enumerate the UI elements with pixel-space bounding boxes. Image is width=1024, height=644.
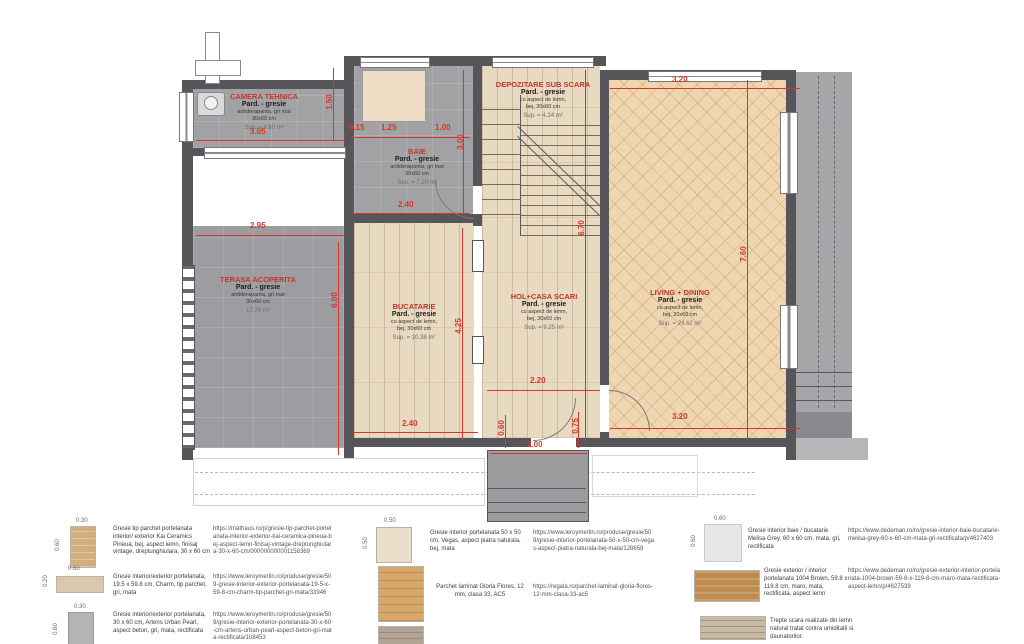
- room-spec: bej, 30x60 cm: [391, 326, 437, 333]
- terasa-floor: [193, 226, 344, 448]
- dimension-line: [352, 432, 478, 433]
- right-terrace: [796, 72, 852, 412]
- room-floor: Pard. - gresie: [390, 156, 444, 164]
- swatch-width-label: 0.60: [714, 516, 726, 522]
- room-spec: antiderapanta, gri mat: [220, 292, 296, 299]
- material-swatch-kai: [70, 526, 96, 568]
- material-swatch-trepte: [700, 616, 766, 640]
- room-spec: bej, 20x60 cm: [650, 312, 710, 319]
- room-spec: antiderapanta, gri mat: [390, 164, 444, 171]
- window: [648, 71, 762, 82]
- room-label-depozitare: DEPOZITARE SUB SCARA Pard. - gresie cu a…: [496, 80, 590, 120]
- material-swatch-charm: [56, 576, 104, 593]
- dimension-line: [350, 137, 470, 138]
- dimension-line: [462, 228, 463, 440]
- legend-description: Gresie tip parchet portelanata interior/…: [113, 526, 211, 557]
- chimney: [205, 32, 220, 84]
- swatch-height-label: 0.20: [43, 575, 49, 587]
- room-spec: bej, 30x60 cm: [511, 316, 578, 323]
- room-title: BUCATARIE: [391, 302, 437, 311]
- material-swatch-melisa: [704, 524, 742, 562]
- dimension-line: [585, 70, 586, 445]
- room-label-terasa: TERASA ACOPERITA Pard. - gresie antidera…: [220, 275, 296, 315]
- room-label-living: LIVING + DINING Pard. - gresie cu aspect…: [650, 288, 710, 328]
- dimension-label: 1.50: [326, 94, 334, 110]
- room-floor: Pard. - gresie: [650, 297, 710, 305]
- window: [179, 92, 194, 142]
- toilet-bowl: [204, 96, 218, 110]
- dimension-label: 2.40: [402, 420, 418, 428]
- material-swatch-gloria: [378, 566, 424, 622]
- dimension-label: 3.00: [457, 134, 465, 150]
- legend-url: https://www.leroymerlin.ro/produse/gresi…: [213, 574, 333, 597]
- wall: [344, 218, 354, 458]
- legend-description: Gresie interior portelanata 50 x 50 cm, …: [430, 530, 530, 553]
- room-label-bucatarie: BUCATARIE Pard. - gresie cu aspect de le…: [391, 302, 437, 342]
- dimension-line: [490, 453, 587, 454]
- legend-url: https://www.dedeman.ro/ro/gresie-exterio…: [848, 568, 1003, 591]
- room-spec: cu aspect de lemn,: [391, 319, 437, 326]
- room-title: CAMERA TEHNICA: [230, 92, 298, 101]
- legend-description: Gresie interior/exterior portelanata, 19…: [113, 574, 211, 597]
- swatch-width-label: 0.30: [74, 604, 86, 610]
- room-area: Sup. = 7.20 m²: [390, 180, 444, 187]
- dimension-line: [352, 213, 470, 214]
- wall: [600, 70, 609, 385]
- legend-description: Gresie interior baie / bucatarie Melisa …: [748, 528, 845, 551]
- wall: [182, 448, 193, 460]
- wall: [476, 438, 531, 447]
- material-swatch-1004-brown: [694, 570, 760, 602]
- room-spec: bej, 30x60 cm: [496, 104, 590, 111]
- room-area: Sup. = 9.25 m²: [511, 325, 578, 332]
- room-area: Sup. = 10.38 m²: [391, 335, 437, 342]
- entrance-step-line: [488, 502, 586, 503]
- sliding-glass-door: [204, 147, 346, 159]
- window: [492, 57, 594, 68]
- dimension-label: 2.95: [250, 222, 266, 230]
- dimension-line: [338, 242, 339, 455]
- room-area: Sup. = 24.62 m²: [650, 321, 710, 328]
- room-label-baie: BAIE Pard. - gresie antiderapanta, gri m…: [390, 147, 444, 187]
- dimension-label: 1.00: [435, 124, 451, 132]
- legend-description: Parchet laminat Gloria Flores, 12 mm, cl…: [430, 584, 530, 600]
- material-swatch-artens: [68, 612, 94, 644]
- room-label-hol: HOL+CASA SCARI Pard. - gresie cu aspect …: [511, 292, 578, 332]
- dimension-line: [196, 140, 345, 141]
- dimension-label: 4.25: [455, 318, 463, 334]
- dimension-label: 0.75: [572, 418, 580, 434]
- right-terrace-extension: [796, 438, 868, 460]
- architectural-sheet: 3.05 1.50 0.15 1.25 1.00 3.00 2.40 2.95 …: [0, 0, 1024, 644]
- wall: [344, 438, 484, 447]
- room-floor: Pard. - gresie: [220, 284, 296, 292]
- dimension-line: [487, 390, 600, 391]
- wall-pillar: [472, 336, 484, 364]
- right-terrace-dashed-line: [834, 76, 836, 408]
- legend-description: Trepte scara realizate din lemn natural …: [770, 618, 860, 641]
- dimension-label: 6.70: [578, 220, 586, 236]
- right-terrace-step: [796, 386, 852, 387]
- legend-url: https://www.leroymerlin.ro/produse/gresi…: [533, 530, 655, 553]
- room-floor: Pard. - gresie: [511, 301, 578, 309]
- legend-description: Gresie exterior / interior portelanata 1…: [764, 568, 849, 599]
- swatch-height-label: 0.60: [55, 539, 61, 551]
- shower-tray: [362, 70, 426, 122]
- legend-url: https://www.leroymerlin.ro/produse/gresi…: [213, 612, 333, 643]
- right-terrace-step: [796, 372, 852, 373]
- swatch-width-label: 0.60: [68, 566, 80, 572]
- swatch-height-label: 0.60: [691, 535, 697, 547]
- dimension-line: [610, 428, 800, 429]
- dimension-label: 6.00: [331, 292, 339, 308]
- dimension-label: 0.60: [498, 420, 506, 436]
- wall: [473, 56, 482, 186]
- dimension-line: [196, 235, 345, 236]
- legend-description: Gresie interior/exterior portelanata, 30…: [113, 612, 211, 635]
- dimension-label: 2.00: [527, 441, 543, 449]
- dimension-label: 3.20: [672, 76, 688, 84]
- room-spec: cu aspect de lemn,: [511, 309, 578, 316]
- room-spec: 30x60 cm: [230, 116, 298, 123]
- room-floor: Pard. - gresie: [391, 311, 437, 319]
- material-swatch-vegas: [376, 527, 412, 563]
- right-terrace-lower-band: [796, 412, 852, 438]
- window: [360, 57, 430, 68]
- room-area: Sup. = 4.80 m²: [230, 125, 298, 132]
- wall: [576, 438, 796, 447]
- wall-pillar: [472, 240, 484, 272]
- room-area: Sup. = 4.24 m²: [496, 113, 590, 120]
- living-floor: [609, 75, 786, 438]
- window: [780, 305, 798, 369]
- swatch-height-label: 0.60: [53, 623, 59, 635]
- wall: [344, 56, 354, 226]
- room-floor: Pard. - gresie: [496, 89, 590, 97]
- materials-legend: 0.30 0.60 Gresie tip parchet portelanata…: [0, 510, 1024, 644]
- dimension-label: 2.40: [398, 201, 414, 209]
- room-spec: cu aspect de lemn,: [496, 97, 590, 104]
- swatch-width-label: 0.50: [384, 518, 396, 524]
- room-area: 17.76 m²: [220, 308, 296, 315]
- room-spec: cu aspect de lemn,: [650, 305, 710, 312]
- room-spec: antiderapanta, gri mat: [230, 109, 298, 116]
- right-terrace-step: [796, 400, 852, 401]
- dimension-label: 1.25: [381, 124, 397, 132]
- room-title: HOL+CASA SCARI: [511, 292, 578, 301]
- dimension-label: 7.60: [740, 246, 748, 262]
- room-spec: 30x60 cm: [220, 299, 296, 306]
- room-title: LIVING + DINING: [650, 288, 710, 297]
- wall: [473, 218, 482, 226]
- swatch-width-label: 0.30: [76, 518, 88, 524]
- room-title: DEPOZITARE SUB SCARA: [496, 80, 590, 89]
- window: [780, 112, 798, 194]
- legend-url: https://mathaus.ro/p/gresie-tip-parchet-…: [213, 526, 333, 557]
- legend-url: https://regala.ro/parchet-laminat-gloria…: [533, 584, 655, 600]
- room-label-camera-tehnica: CAMERA TEHNICA Pard. - gresie antiderapa…: [230, 92, 298, 132]
- room-title: TERASA ACOPERITA: [220, 275, 296, 284]
- terasa-edge-battens: [182, 265, 195, 450]
- porch-edge: [193, 458, 485, 506]
- material-swatch-greywood: [378, 626, 424, 644]
- entrance-step-line: [488, 488, 586, 489]
- right-terrace-dashed-line: [818, 76, 820, 408]
- dimension-line: [610, 88, 800, 89]
- porch-edge: [592, 455, 698, 497]
- swatch-height-label: 0.50: [363, 537, 369, 549]
- floor-plan: 3.05 1.50 0.15 1.25 1.00 3.00 2.40 2.95 …: [0, 0, 1024, 524]
- dimension-label: 2.20: [530, 377, 546, 385]
- room-spec: 30x60 cm: [390, 171, 444, 178]
- legend-url: https://www.dedeman.ro/ro/gresie-interio…: [848, 528, 1003, 544]
- vent-box: [195, 60, 241, 76]
- dimension-label: 3.20: [672, 413, 688, 421]
- room-title: BAIE: [390, 147, 444, 156]
- dimension-label: 0.15: [349, 124, 365, 132]
- room-floor: Pard. - gresie: [230, 101, 298, 109]
